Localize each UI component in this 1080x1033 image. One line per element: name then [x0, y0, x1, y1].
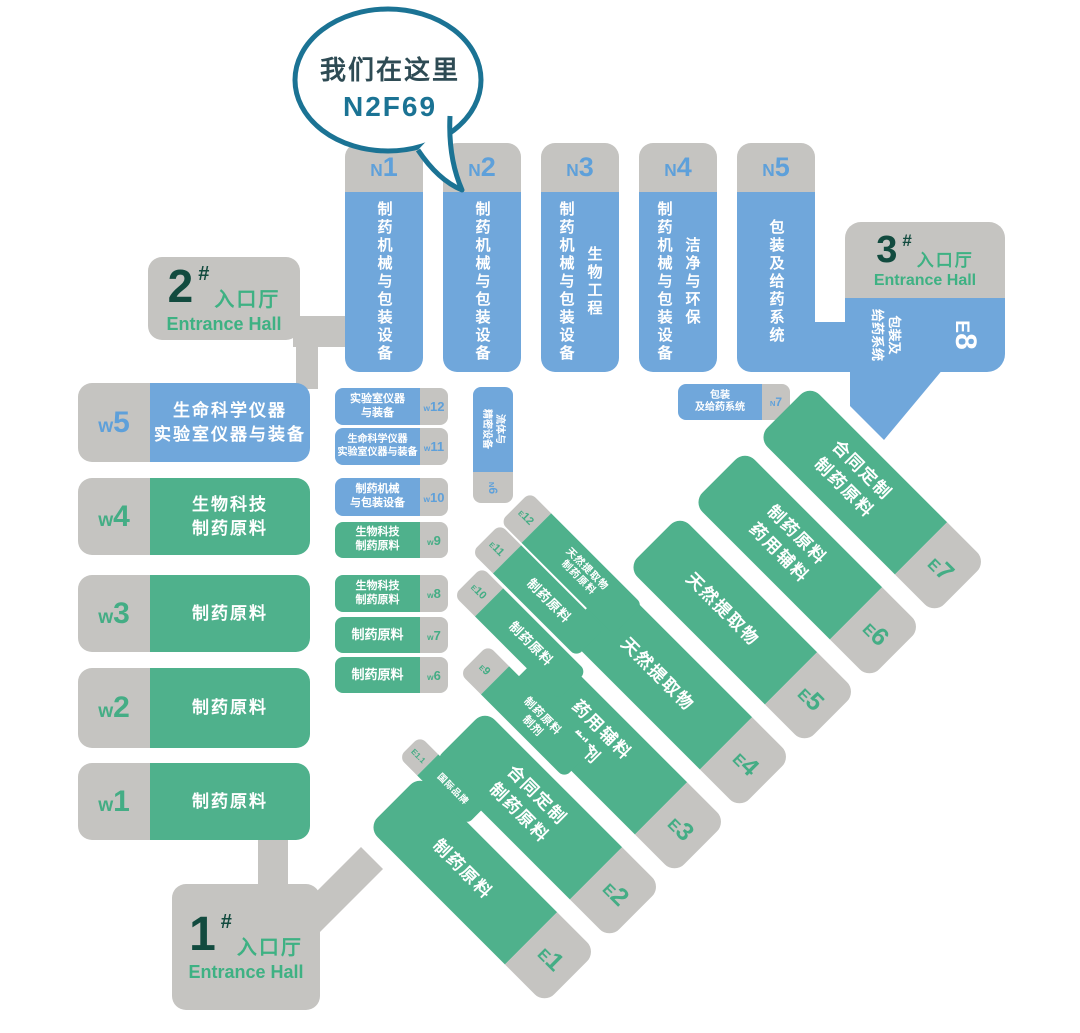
category-line: 包装及给药系统 [766, 219, 787, 345]
entrance-2-en: Entrance Hall [166, 314, 281, 335]
hall-e7-label-text: E7 [922, 549, 960, 587]
category-line: 制药原料 [427, 834, 498, 905]
hall-w10-categories: 制药机械与包装设备 [335, 478, 420, 516]
hall-n4-label: N4 [639, 143, 717, 192]
hall-w1-label: w1 [78, 763, 150, 840]
entrance-3-hash: # [902, 232, 911, 249]
hall-w2-label-text: w2 [98, 691, 130, 725]
category-line: 生物科技 [356, 580, 400, 594]
category-line: 生物科技 [192, 493, 268, 517]
category-line: 洁净与环保 [682, 237, 703, 327]
entrance-2-number: 2 [168, 263, 194, 309]
category-line: 制药原料 [351, 627, 403, 643]
category-line: 精密设备 [480, 409, 493, 449]
hall-w3-label-text: w3 [98, 597, 130, 631]
entrance-2-cn: 入口厅 [214, 283, 280, 312]
hall-n1-categories: 制药机械与包装设备 [345, 192, 423, 372]
hall-n5-label-text: N5 [762, 152, 790, 183]
category-line: 生物工程 [584, 246, 605, 318]
category-line: 与包装设备 [350, 497, 405, 511]
category-line: 制药机械与包装设备 [654, 201, 675, 363]
category-line: 制药机械与包装设备 [374, 201, 395, 363]
category-line: 给药系统 [868, 309, 885, 361]
hall-n6-categories-text: 流体与精密设备 [473, 388, 513, 470]
hall-w9[interactable]: 生物科技制药原料 w9 [335, 522, 448, 558]
hall-n6-label-text: N6 [486, 481, 500, 493]
hall-w8[interactable]: 生物科技制药原料 w8 [335, 575, 448, 612]
hall-n5-label: N5 [737, 143, 815, 192]
hall-w12-label-text: w12 [424, 399, 445, 414]
hall-w3-label: w3 [78, 575, 150, 652]
entrance-3[interactable]: 3#入口厅 Entrance Hall [845, 222, 1005, 298]
hall-e8-categories: 包装及给药系统 [852, 302, 918, 368]
entrance-1-hash: # [221, 912, 232, 932]
hall-e6-label-text: E6 [857, 614, 895, 652]
hall-w2-label: w2 [78, 668, 150, 748]
entrance-2-hash: # [198, 264, 209, 284]
entrance-2-title: 2#入口厅 [168, 263, 281, 312]
category-line: 及给药系统 [695, 402, 745, 415]
hall-w9-label: w9 [420, 522, 448, 558]
hall-w4[interactable]: w4 生物科技制药原料 [78, 478, 310, 555]
hall-w4-categories: 生物科技制药原料 [150, 478, 310, 555]
hall-w3[interactable]: w3 制药原料 [78, 575, 310, 652]
category-line: 制药原料 [356, 594, 400, 608]
entrance-1-number: 1 [189, 911, 216, 959]
hall-w12[interactable]: 实验室仪器与装备 w12 [335, 388, 448, 425]
entrance-1-cn: 入口厅 [237, 931, 303, 960]
hall-w7[interactable]: 制药原料 w7 [335, 617, 448, 653]
hall-w5[interactable]: w5 生命科学仪器实验室仪器与装备 [78, 383, 310, 462]
hall-w4-label-text: w4 [98, 500, 130, 534]
category-line: 制药机械与包装设备 [556, 201, 577, 363]
category-line: 生命科学仪器 [348, 434, 408, 447]
category-line: 制药原料 [192, 696, 268, 720]
hall-n6-categories: 流体与精密设备 [473, 387, 513, 472]
hall-e5-label-text: E5 [792, 679, 830, 717]
hall-e1-label-text: E1 [532, 939, 570, 977]
hall-n7-label-text: N7 [770, 395, 782, 409]
hall-n6-label: N6 [473, 472, 513, 503]
hall-w8-label: w8 [420, 575, 448, 612]
hall-e4-label-text: E4 [727, 744, 765, 782]
hall-n3-label-text: N3 [566, 152, 594, 183]
hall-w12-categories: 实验室仪器与装备 [335, 388, 420, 425]
entrance-1-title: 1#入口厅 [189, 911, 303, 960]
hall-w7-label-text: w7 [427, 628, 441, 643]
speech-bubble-text: 我们在这里 [300, 50, 480, 87]
hall-w2-categories: 制药原料 [150, 668, 310, 748]
hall-e2-label-text: E2 [597, 874, 635, 912]
hall-w10[interactable]: 制药机械与包装设备 w10 [335, 478, 448, 516]
category-line: 制药原料 [192, 790, 268, 814]
hall-w1-label-text: w1 [98, 785, 130, 819]
hall-w9-label-text: w9 [427, 533, 441, 548]
hall-w11-label-text: w11 [424, 439, 444, 454]
hall-n6[interactable]: 流体与精密设备 N6 [473, 387, 513, 503]
category-line: 制药原料 [192, 517, 268, 541]
entrance-1[interactable]: 1#入口厅 Entrance Hall [172, 884, 320, 1010]
hall-w7-label: w7 [420, 617, 448, 653]
hall-w3-categories: 制药原料 [150, 575, 310, 652]
entrance-2[interactable]: 2#入口厅 Entrance Hall [148, 257, 300, 340]
hall-w5-label: w5 [78, 383, 150, 462]
hall-e8-label: E8 [930, 300, 1000, 370]
hall-w8-label-text: w8 [427, 586, 441, 601]
hall-n3[interactable]: N3 制药机械与包装设备生物工程 [541, 143, 619, 372]
hall-w1-categories: 制药原料 [150, 763, 310, 840]
hall-w4-label: w4 [78, 478, 150, 555]
hall-n5-categories: 包装及给药系统 [737, 192, 815, 372]
category-line: 制药原料 [356, 540, 400, 554]
hall-w6[interactable]: 制药原料 w6 [335, 657, 448, 693]
category-line: 实验室仪器 [350, 393, 405, 407]
connector-w1-entrance1 [258, 836, 288, 888]
hall-e8-label-text: E8 [948, 320, 982, 350]
category-line: 流体与 [493, 414, 506, 444]
hall-n5[interactable]: N5 包装及给药系统 [737, 143, 815, 372]
category-line: 制药原料 [351, 667, 403, 683]
hall-w6-categories: 制药原料 [335, 657, 420, 693]
hall-e1-1-label-text: E1.1 [410, 747, 428, 765]
hall-e12-label-text: E12 [516, 507, 536, 527]
hall-w12-label: w12 [420, 388, 448, 425]
hall-n3-categories: 制药机械与包装设备生物工程 [541, 192, 619, 372]
expo-floor-map: N1 制药机械与包装设备 N2 制药机械与包装设备 N3 制药机械与包装设备生物… [0, 0, 1080, 1033]
category-line: 实验室仪器与装备 [154, 423, 306, 447]
hall-w1[interactable]: w1 制药原料 [78, 763, 310, 840]
hall-n4-categories: 制药机械与包装设备洁净与环保 [639, 192, 717, 372]
hall-w5-categories: 生命科学仪器实验室仪器与装备 [150, 383, 310, 462]
hall-w8-categories: 生物科技制药原料 [335, 575, 420, 612]
hall-w6-label: w6 [420, 657, 448, 693]
category-line: 制药原料 [192, 602, 268, 626]
hall-e11-label-text: E11 [486, 539, 506, 559]
hall-w9-categories: 生物科技制药原料 [335, 522, 420, 558]
hall-e9-label-text: E9 [476, 662, 492, 678]
category-line: 与装备 [361, 407, 394, 421]
hall-n7-categories: 包装及给药系统 [678, 384, 762, 420]
entrance-1-en: Entrance Hall [188, 962, 303, 983]
hall-e10-label-text: E10 [468, 582, 488, 602]
entrance-3-title: 3#入口厅 [876, 231, 974, 271]
entrance-3-en: Entrance Hall [874, 272, 976, 290]
hall-n4[interactable]: N4 制药机械与包装设备洁净与环保 [639, 143, 717, 372]
hall-n3-label: N3 [541, 143, 619, 192]
entrance-3-cn: 入口厅 [917, 246, 974, 271]
speech-bubble-booth: N2F69 [300, 91, 480, 123]
category-line: 包装及 [885, 315, 902, 354]
connector-entrance2-w5 [296, 331, 318, 389]
hall-w11[interactable]: 生命科学仪器实验室仪器与装备 w11 [335, 428, 448, 465]
hall-w10-label: w10 [420, 478, 448, 516]
category-line: 制药机械 [356, 483, 400, 497]
hall-n2-categories: 制药机械与包装设备 [443, 192, 521, 372]
hall-n4-label-text: N4 [664, 152, 692, 183]
category-line: 包装 [710, 390, 730, 403]
category-line: 生命科学仪器 [173, 399, 287, 423]
category-line: 制药机械与包装设备 [472, 201, 493, 363]
hall-e8[interactable]: 包装及给药系统 E8 [845, 298, 1005, 372]
hall-w5-label-text: w5 [98, 406, 130, 440]
entrance-3-number: 3 [876, 231, 897, 269]
category-line: 生物科技 [356, 526, 400, 540]
hall-w10-label-text: w10 [424, 490, 445, 505]
hall-e3-label-text: E3 [662, 809, 700, 847]
hall-n7[interactable]: 包装及给药系统 N7 [678, 384, 790, 420]
category-line: 实验室仪器与装备 [338, 447, 418, 460]
hall-w11-categories: 生命科学仪器实验室仪器与装备 [335, 428, 420, 465]
hall-w6-label-text: w6 [427, 668, 441, 683]
hall-w2[interactable]: w2 制药原料 [78, 668, 310, 748]
connector-e8-e7 [850, 368, 944, 440]
hall-w11-label: w11 [420, 428, 448, 465]
hall-w7-categories: 制药原料 [335, 617, 420, 653]
